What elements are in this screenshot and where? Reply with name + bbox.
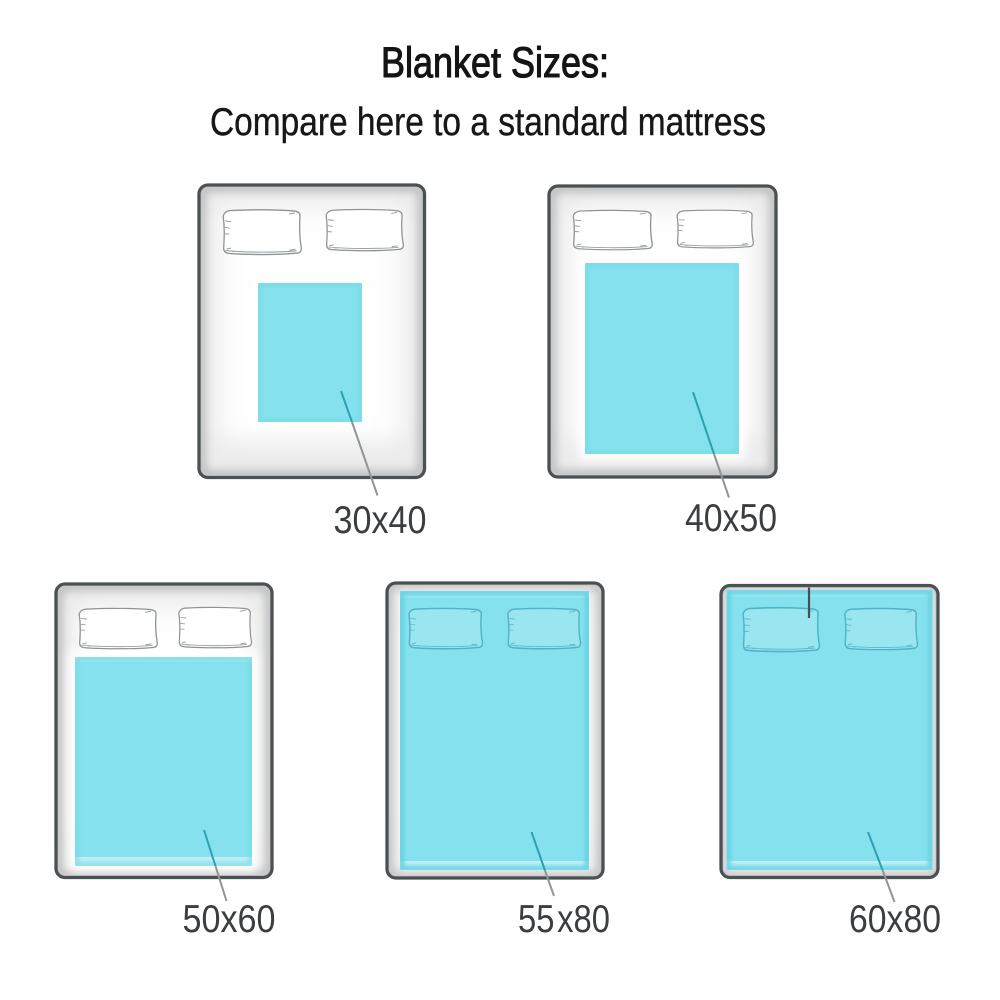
svg-text:50x60: 50x60 [183, 898, 276, 941]
svg-text:60x80: 60x80 [849, 898, 941, 941]
svg-text:Compare here to a standard mat: Compare here to a standard mattress [210, 101, 766, 144]
svg-text:40x50: 40x50 [685, 497, 777, 540]
svg-text:55 x80: 55 x80 [518, 898, 610, 941]
svg-text:Blanket Sizes:: Blanket Sizes: [381, 39, 609, 87]
svg-text:30x40: 30x40 [334, 499, 427, 542]
